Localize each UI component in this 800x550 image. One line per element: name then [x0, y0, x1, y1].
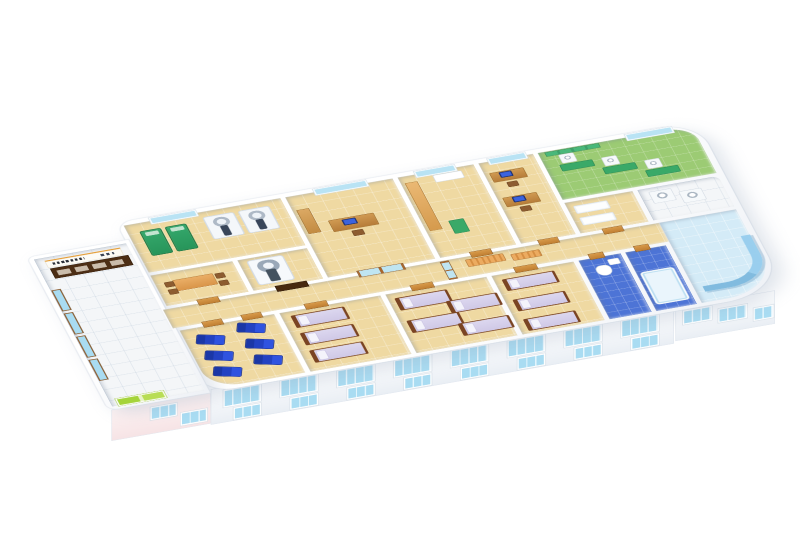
- floor-plan-3d: [14, 118, 796, 426]
- facade-window: [181, 408, 208, 426]
- facade-window: [150, 403, 177, 421]
- facade-window: [404, 373, 432, 390]
- facade-window: [461, 363, 489, 380]
- facade-window: [754, 305, 774, 322]
- facade-window: [290, 393, 318, 410]
- facade-window: [347, 383, 375, 400]
- facade-window: [574, 343, 602, 360]
- facade-window: [233, 403, 261, 420]
- floor-plan-canvas: [0, 0, 800, 550]
- facade-window: [517, 353, 545, 370]
- facade-window: [718, 304, 747, 323]
- facade-window: [631, 333, 659, 350]
